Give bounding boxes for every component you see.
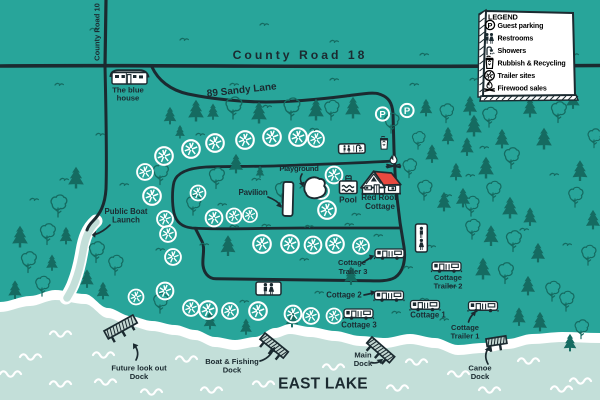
svg-text:Cottage: Cottage [365, 202, 395, 211]
svg-text:Playground: Playground [279, 164, 319, 173]
svg-text:P: P [488, 21, 493, 30]
svg-text:P: P [379, 109, 386, 120]
svg-text:Red Roof: Red Roof [361, 193, 397, 202]
svg-text:Pavilion: Pavilion [238, 188, 267, 197]
svg-text:EAST LAKE: EAST LAKE [278, 376, 368, 393]
svg-text:Dock: Dock [223, 366, 242, 375]
svg-text:house: house [117, 94, 140, 103]
svg-text:Guest parking: Guest parking [498, 22, 544, 30]
svg-text:Dock: Dock [130, 372, 149, 381]
svg-text:County Road 18: County Road 18 [233, 48, 368, 62]
svg-text:Rubbish & Recycling: Rubbish & Recycling [498, 60, 566, 68]
svg-text:P: P [404, 106, 411, 117]
svg-text:Pool: Pool [339, 196, 357, 205]
svg-text:Cottage 1: Cottage 1 [410, 311, 446, 320]
svg-text:Cottage 3: Cottage 3 [341, 321, 377, 330]
svg-text:Restrooms: Restrooms [498, 35, 534, 43]
svg-text:Cottage: Cottage [338, 258, 366, 267]
svg-text:Cottage 2: Cottage 2 [326, 291, 362, 300]
svg-text:Launch: Launch [112, 216, 140, 225]
svg-text:Dock: Dock [354, 359, 373, 368]
svg-text:Showers: Showers [498, 47, 527, 55]
svg-text:Trailer sites: Trailer sites [498, 72, 536, 80]
svg-text:County Road 10: County Road 10 [93, 3, 102, 61]
svg-text:LEGEND: LEGEND [488, 13, 518, 22]
svg-text:Trailer 2: Trailer 2 [434, 282, 463, 291]
svg-text:Trailer 3: Trailer 3 [339, 267, 368, 276]
svg-text:Dock: Dock [471, 372, 490, 381]
svg-text:Trailer 1: Trailer 1 [451, 332, 480, 341]
svg-text:Firewood sales: Firewood sales [498, 85, 547, 93]
